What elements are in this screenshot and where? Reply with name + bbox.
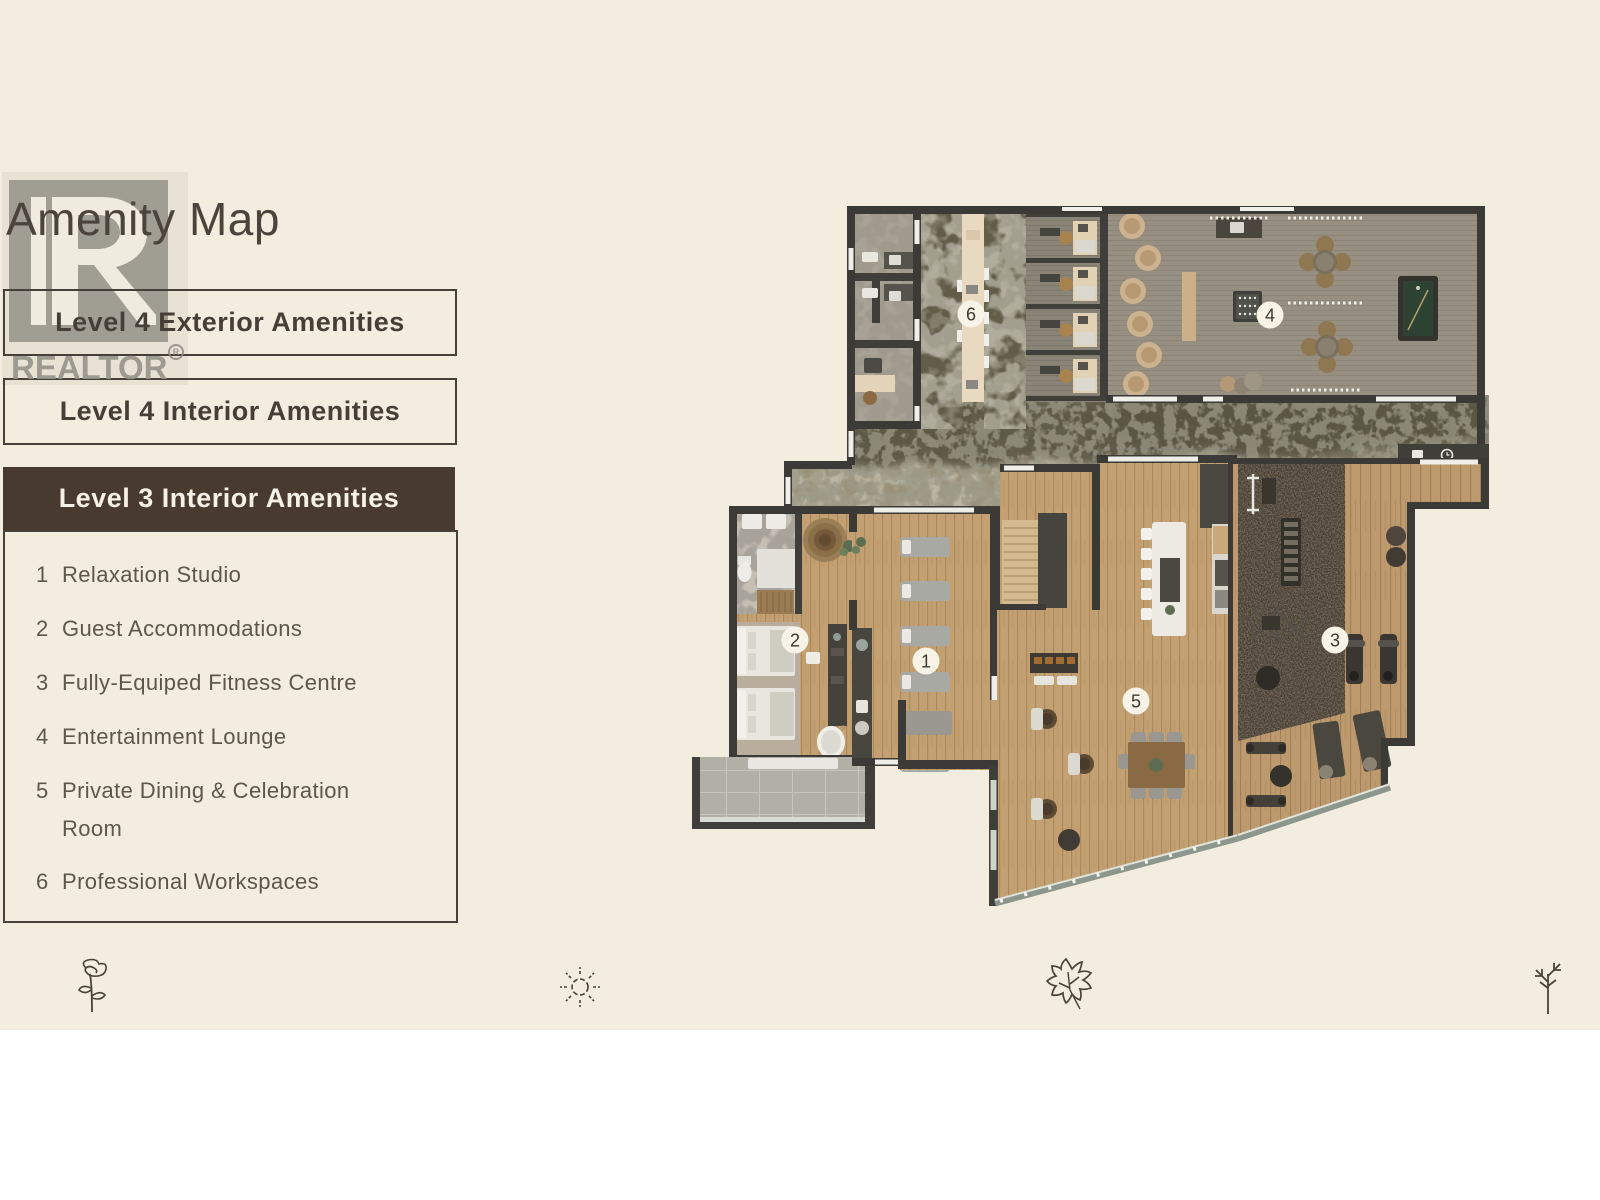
svg-text:6: 6 [966,305,976,325]
svg-text:4: 4 [1265,306,1275,326]
svg-text:1: 1 [921,652,931,672]
svg-text:3: 3 [1330,631,1340,651]
svg-text:5: 5 [1131,692,1141,712]
svg-text:2: 2 [790,631,800,651]
